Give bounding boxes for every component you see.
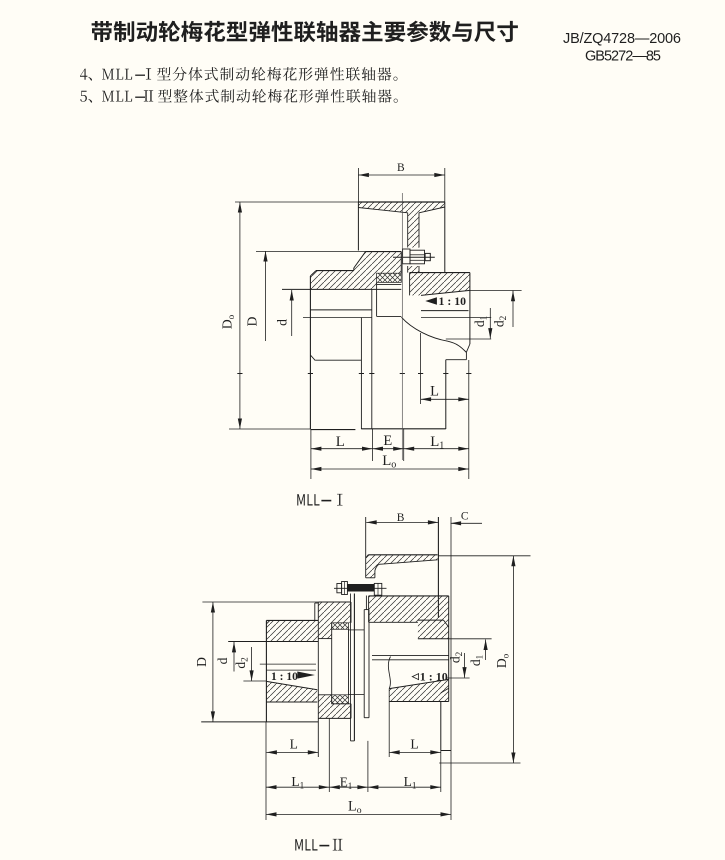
svg-text:D: D <box>245 316 260 326</box>
svg-text:JB/ZQ4728—2006: JB/ZQ4728—2006 <box>563 31 681 47</box>
svg-text:L: L <box>336 434 345 450</box>
svg-text:d: d <box>215 657 230 664</box>
svg-text:1 : 10: 1 : 10 <box>420 670 448 684</box>
svg-text:1 : 10: 1 : 10 <box>439 294 467 308</box>
svg-text:B: B <box>397 512 405 524</box>
svg-text:D: D <box>194 657 209 667</box>
svg-text:L: L <box>290 736 298 751</box>
svg-text:GB5272—85: GB5272—85 <box>585 49 661 65</box>
svg-text:L: L <box>410 736 418 751</box>
svg-text:E: E <box>383 433 392 449</box>
svg-text:L: L <box>430 383 439 399</box>
svg-text:d: d <box>275 319 290 326</box>
svg-text:1 : 10: 1 : 10 <box>271 671 298 683</box>
svg-text:C: C <box>461 511 469 523</box>
svg-text:B: B <box>397 162 405 174</box>
